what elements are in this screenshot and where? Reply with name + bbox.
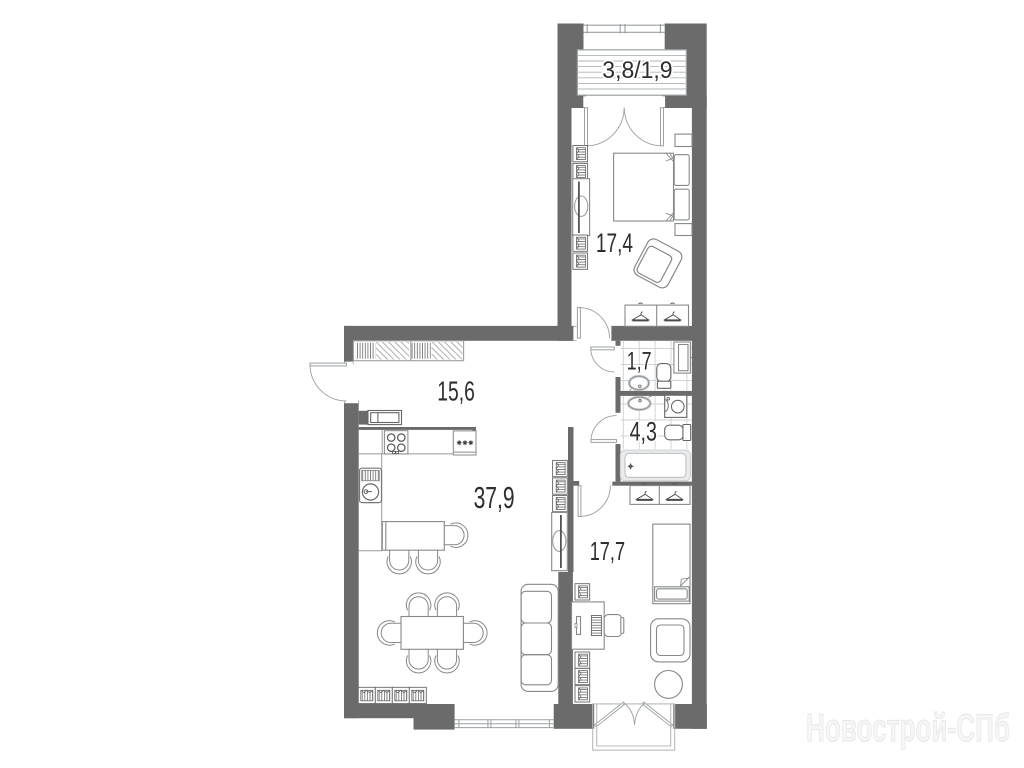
svg-text:15,6: 15,6 [437, 375, 475, 406]
svg-text:3,8/1,9: 3,8/1,9 [602, 57, 672, 84]
svg-text:1,7: 1,7 [627, 348, 652, 376]
svg-text:Новострой-СПб: Новострой-СПб [806, 707, 1010, 750]
svg-text:4,3: 4,3 [630, 417, 657, 447]
svg-text:37,9: 37,9 [474, 482, 515, 515]
svg-text:17,7: 17,7 [590, 538, 625, 566]
svg-text:17,4: 17,4 [596, 228, 633, 258]
